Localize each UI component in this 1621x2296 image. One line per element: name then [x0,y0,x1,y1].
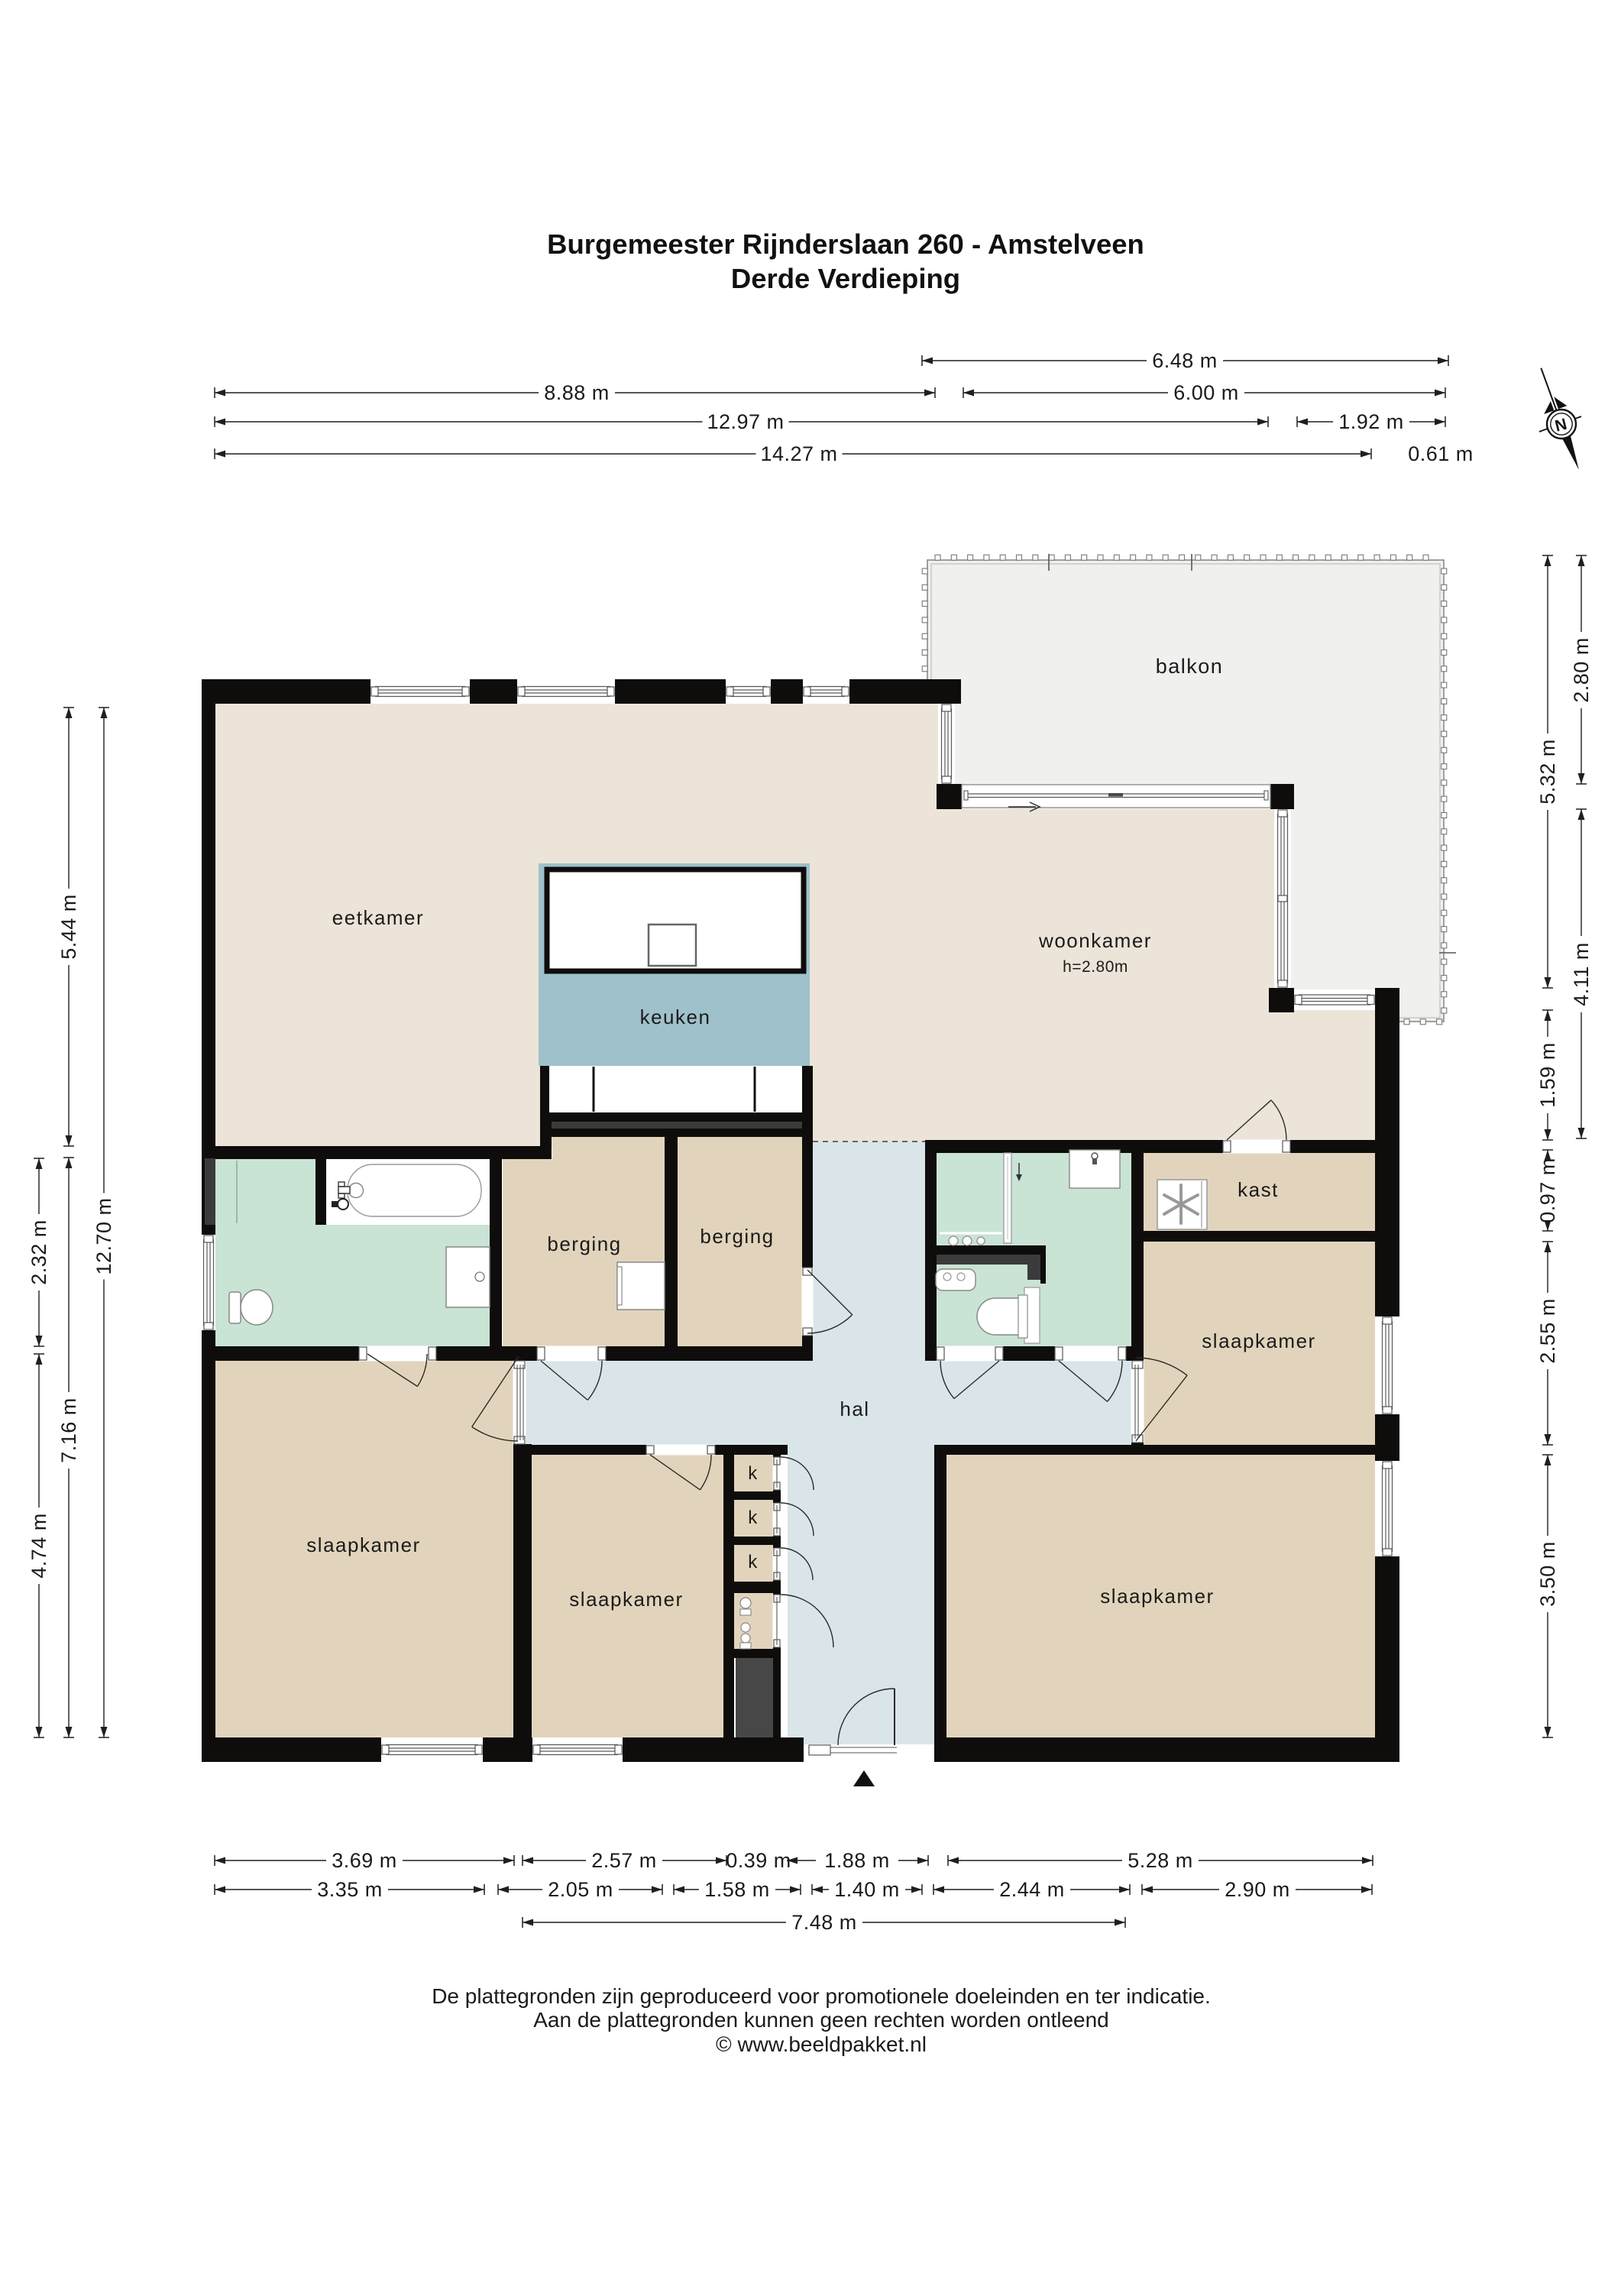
svg-text:Burgemeester Rijnderslaan 260: Burgemeester Rijnderslaan 260 - Amstelve… [547,228,1144,260]
svg-text:1.92 m: 1.92 m [1338,410,1404,433]
svg-text:Derde Verdieping: Derde Verdieping [731,263,960,294]
svg-text:4.11 m: 4.11 m [1570,942,1593,1006]
svg-text:2.80 m: 2.80 m [1570,637,1593,703]
svg-text:slaapkamer: slaapkamer [569,1588,683,1611]
svg-text:12.70 m: 12.70 m [92,1197,115,1274]
svg-text:0.61 m: 0.61 m [1408,442,1474,465]
svg-text:4.74 m: 4.74 m [28,1513,50,1579]
svg-text:berging: berging [700,1225,774,1248]
svg-text:1.40 m: 1.40 m [834,1878,900,1901]
svg-text:0.97 m: 0.97 m [1536,1158,1559,1223]
svg-text:2.44 m: 2.44 m [999,1878,1065,1901]
svg-text:5.28 m: 5.28 m [1128,1849,1193,1872]
svg-text:slaapkamer: slaapkamer [306,1533,420,1556]
svg-text:6.48 m: 6.48 m [1152,349,1218,372]
svg-text:eetkamer: eetkamer [332,906,424,929]
svg-text:5.32 m: 5.32 m [1536,739,1559,805]
svg-text:balkon: balkon [1156,655,1224,678]
svg-text:3.50 m: 3.50 m [1536,1541,1559,1607]
svg-text:keuken: keuken [640,1006,711,1028]
svg-text:2.55 m: 2.55 m [1536,1298,1559,1364]
svg-text:0.39 m: 0.39 m [726,1849,791,1872]
svg-text:12.97 m: 12.97 m [707,410,784,433]
svg-text:k: k [748,1463,759,1484]
svg-text:7.48 m: 7.48 m [791,1911,857,1934]
svg-text:slaapkamer: slaapkamer [1100,1585,1214,1608]
svg-text:1.58 m: 1.58 m [704,1878,770,1901]
svg-text:De plattegronden zijn geproduc: De plattegronden zijn geproduceerd voor … [432,1984,1211,2008]
svg-text:1.59 m: 1.59 m [1536,1042,1559,1108]
svg-text:hal: hal [840,1397,869,1420]
svg-text:2.05 m: 2.05 m [548,1878,613,1901]
svg-text:kast: kast [1238,1178,1279,1201]
svg-text:k: k [748,1552,759,1572]
svg-text:2.57 m: 2.57 m [591,1849,657,1872]
svg-text:Aan de plattegronden kunnen ge: Aan de plattegronden kunnen geen rechten… [533,2008,1108,2032]
svg-text:woonkamer: woonkamer [1038,929,1152,952]
svg-text:3.69 m: 3.69 m [332,1849,397,1872]
svg-text:© www.beeldpakket.nl: © www.beeldpakket.nl [716,2032,927,2056]
svg-text:2.90 m: 2.90 m [1225,1878,1290,1901]
svg-text:1.88 m: 1.88 m [824,1849,890,1872]
svg-text:k: k [748,1507,759,1528]
svg-text:7.16 m: 7.16 m [57,1397,80,1463]
svg-text:h=2.80m: h=2.80m [1063,958,1128,976]
svg-text:slaapkamer: slaapkamer [1202,1329,1315,1352]
svg-text:6.00 m: 6.00 m [1173,381,1239,404]
svg-text:3.35 m: 3.35 m [317,1878,383,1901]
svg-text:berging: berging [547,1232,621,1255]
svg-text:2.32 m: 2.32 m [28,1219,50,1285]
svg-text:8.88 m: 8.88 m [544,381,610,404]
svg-text:14.27 m: 14.27 m [760,442,837,465]
svg-text:5.44 m: 5.44 m [57,894,80,960]
